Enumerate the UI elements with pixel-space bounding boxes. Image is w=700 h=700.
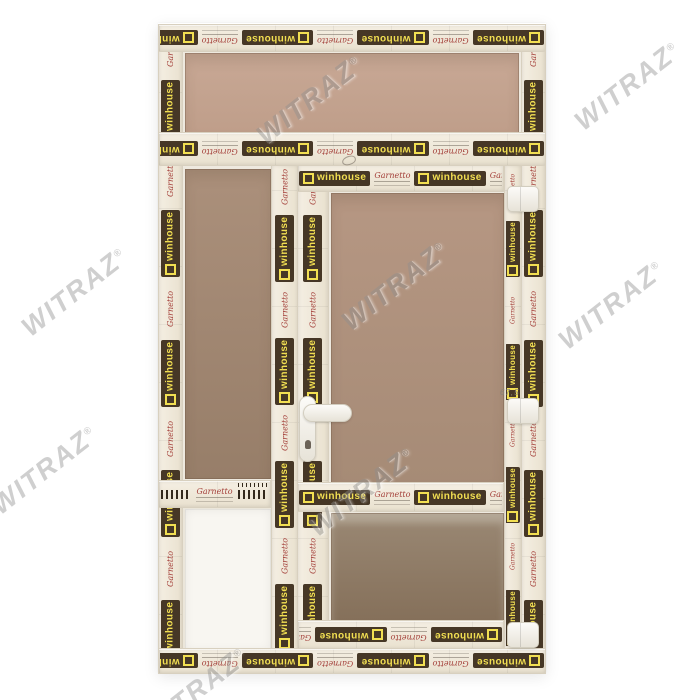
garnetto-script-label: Garnetto: [433, 654, 469, 669]
winhouse-logo-icon: [298, 656, 309, 667]
tape-row: winhouse Garnetto winhouse Garnetto: [299, 622, 502, 648]
winhouse-tape-label: winhouse: [357, 654, 428, 669]
winhouse-logo-icon: [298, 33, 309, 44]
garnetto-script-label: Garnetto: [433, 31, 469, 46]
garnetto-script-label: Garnetto: [529, 291, 538, 327]
winhouse-logo-icon: [308, 269, 319, 280]
garnetto-script-label: Garnetto: [490, 171, 502, 186]
winhouse-logo-icon: [280, 515, 291, 526]
garnetto-script-label: Garnetto: [309, 538, 318, 574]
winhouse-logo-icon: [183, 144, 194, 155]
garnetto-script-label: Garnetto: [391, 628, 427, 643]
garnetto-script-label: Garnetto: [374, 171, 410, 186]
garnetto-script-label: Garnetto: [510, 297, 517, 324]
winhouse-tape-label: winhouse: [414, 171, 485, 186]
garnetto-script-label: Garnetto: [166, 551, 175, 587]
winhouse-logo-icon: [165, 264, 176, 275]
winhouse-logo-icon: [414, 144, 425, 155]
winhouse-logo-icon: [508, 511, 519, 522]
winhouse-logo-icon: [414, 656, 425, 667]
winhouse-logo-icon: [303, 173, 314, 184]
garnetto-script-label: Garnetto: [490, 490, 502, 505]
door-hinge-top: [507, 186, 539, 212]
tape-row: winhouse Garnetto winhouse Garnetto winh…: [160, 26, 181, 672]
tape-row: winhouse Garnetto winhouse Garnetto winh…: [160, 26, 544, 50]
winhouse-tape-label: winhouse: [160, 31, 198, 46]
winhouse-tape-label: winhouse: [506, 467, 520, 523]
winhouse-logo-icon: [418, 492, 429, 503]
winhouse-logo-icon: [183, 656, 194, 667]
winhouse-tape-label: winhouse: [160, 142, 198, 157]
garnetto-script-label: Garnetto: [510, 543, 517, 570]
pencil-note: 67,5: [500, 388, 520, 397]
tape-row: winhouse Garnetto winhouse Garnetto winh…: [523, 26, 544, 672]
winhouse-logo-icon: [303, 492, 314, 503]
winhouse-tape-label: winhouse: [315, 628, 386, 643]
winhouse-tape-label: winhouse: [357, 142, 428, 157]
winhouse-tape-label: winhouse: [524, 210, 543, 277]
winhouse-logo-icon: [165, 394, 176, 405]
door-top-rail: winhouse Garnetto winhouse Garnetto: [297, 164, 504, 192]
winhouse-tape-label: winhouse: [299, 171, 370, 186]
winhouse-tape-label: winhouse: [276, 215, 295, 282]
door-lower-glass: [328, 510, 507, 624]
winhouse-tape-label: winhouse: [473, 654, 544, 669]
outer-frame-right: winhouse Garnetto winhouse Garnetto winh…: [521, 24, 546, 674]
witraz-watermark: WITRAZ®: [569, 35, 688, 137]
transom-glass: [182, 50, 522, 136]
winhouse-tape-label: winhouse: [242, 654, 313, 669]
garnetto-script-label: Garnetto: [281, 415, 290, 451]
garnetto-script-label: Garnetto: [281, 292, 290, 328]
outer-frame-bottom: winhouse Garnetto winhouse Garnetto winh…: [158, 648, 546, 674]
door-handle: [303, 404, 352, 422]
winhouse-tape-label: winhouse: [524, 470, 543, 537]
garnetto-script-label: Garnetto: [281, 169, 290, 205]
left-bottom-panel: [182, 506, 274, 654]
garnetto-script-label: Garnetto: [433, 142, 469, 157]
tape-row: winhouse Garnetto winhouse Garnetto winh…: [160, 650, 544, 672]
garnetto-script-label: Garnetto: [202, 654, 238, 669]
winhouse-logo-icon: [508, 265, 519, 276]
garnetto-script-label: Garnetto: [529, 551, 538, 587]
winhouse-tape-label: winhouse: [506, 221, 520, 277]
winhouse-logo-icon: [418, 173, 429, 184]
garnetto-script-label: Garnetto: [166, 291, 175, 327]
winhouse-tape-label: winhouse: [299, 490, 370, 505]
garnetto-script-label: Garnetto: [299, 628, 311, 643]
winhouse-tape-label: winhouse: [414, 490, 485, 505]
winhouse-tape-label: winhouse: [276, 338, 295, 405]
garnetto-script-label: Garnetto: [166, 421, 175, 457]
winhouse-tape-label: winhouse: [473, 142, 544, 157]
winhouse-logo-icon: [414, 33, 425, 44]
garnetto-script-label: Garnetto: [374, 490, 410, 505]
garnetto-script-label: Garnetto: [202, 142, 238, 157]
winhouse-logo-icon: [487, 630, 498, 641]
winhouse-tape-label: winhouse: [242, 31, 313, 46]
outer-frame-top: winhouse Garnetto winhouse Garnetto winh…: [158, 24, 546, 52]
winhouse-tape-label: winhouse: [161, 340, 180, 407]
winhouse-tape-label: winhouse: [242, 142, 313, 157]
garnetto-script-label: Garnetto: [166, 161, 175, 197]
center-mullion: winhouse Garnetto winhouse Garnetto winh…: [271, 164, 299, 656]
winhouse-logo-icon: [183, 33, 194, 44]
tape-row: winhouse Garnetto winhouse Garnetto winh…: [273, 166, 297, 654]
winhouse-tape-label: winhouse: [276, 461, 295, 528]
winhouse-logo-icon: [308, 515, 319, 526]
winhouse-tape-label: winhouse: [357, 31, 428, 46]
winhouse-logo-icon: [165, 524, 176, 535]
garnetto-script-label: Garnetto: [309, 292, 318, 328]
winhouse-logo-icon: [372, 630, 383, 641]
keyhole: [305, 440, 311, 449]
winhouse-logo-icon: [529, 33, 540, 44]
witraz-watermark: WITRAZ®: [16, 241, 135, 343]
winhouse-tape-label: winhouse: [276, 584, 295, 651]
tape-row: Garnetto: [160, 482, 269, 506]
garnetto-script-label: Garnetto: [510, 420, 517, 447]
winhouse-tape-label: winhouse: [160, 654, 198, 669]
witraz-watermark: WITRAZ®: [0, 419, 104, 521]
barcode-mark-icon: [238, 490, 268, 499]
garnetto-script-label: Garnetto: [202, 31, 238, 46]
tape-row: winhouse Garnetto winhouse Garnetto: [299, 166, 502, 190]
garnetto-script-label: Garnetto: [317, 31, 353, 46]
product-photo: winhouse Garnetto winhouse Garnetto winh…: [0, 0, 700, 700]
garnetto-script-label: Garnetto: [529, 421, 538, 457]
barcode-mark-icon: [161, 490, 191, 499]
door-upper-glass: [328, 190, 507, 486]
garnetto-script-label: Garnetto: [317, 654, 353, 669]
garnetto-script-label: Garnetto: [281, 538, 290, 574]
garnetto-script-label: Garnetto: [317, 142, 353, 157]
left-panel-mullion: Garnetto: [158, 480, 271, 508]
tape-row: winhouse Garnetto winhouse Garnetto: [299, 484, 502, 510]
winhouse-logo-icon: [529, 656, 540, 667]
winhouse-logo-icon: [280, 269, 291, 280]
winhouse-logo-icon: [528, 264, 539, 275]
winhouse-logo-icon: [298, 144, 309, 155]
winhouse-logo-icon: [280, 392, 291, 403]
winhouse-logo-icon: [529, 144, 540, 155]
winhouse-logo-icon: [528, 524, 539, 535]
winhouse-tape-label: winhouse: [431, 628, 502, 643]
door-mid-rail: winhouse Garnetto winhouse Garnetto: [297, 482, 504, 512]
witraz-watermark: WITRAZ®: [553, 254, 672, 356]
outer-frame-left: winhouse Garnetto winhouse Garnetto winh…: [158, 24, 183, 674]
garnetto-script-label: Garnetto: [196, 487, 232, 502]
door-bottom-rail: winhouse Garnetto winhouse Garnetto: [297, 620, 504, 650]
winhouse-tape-label: winhouse: [304, 215, 323, 282]
door-hinge-bottom: [507, 622, 539, 648]
door-hinge-middle: [507, 398, 539, 424]
left-window-glass: [182, 166, 274, 482]
winhouse-tape-label: winhouse: [473, 31, 544, 46]
winhouse-tape-label: winhouse: [161, 210, 180, 277]
